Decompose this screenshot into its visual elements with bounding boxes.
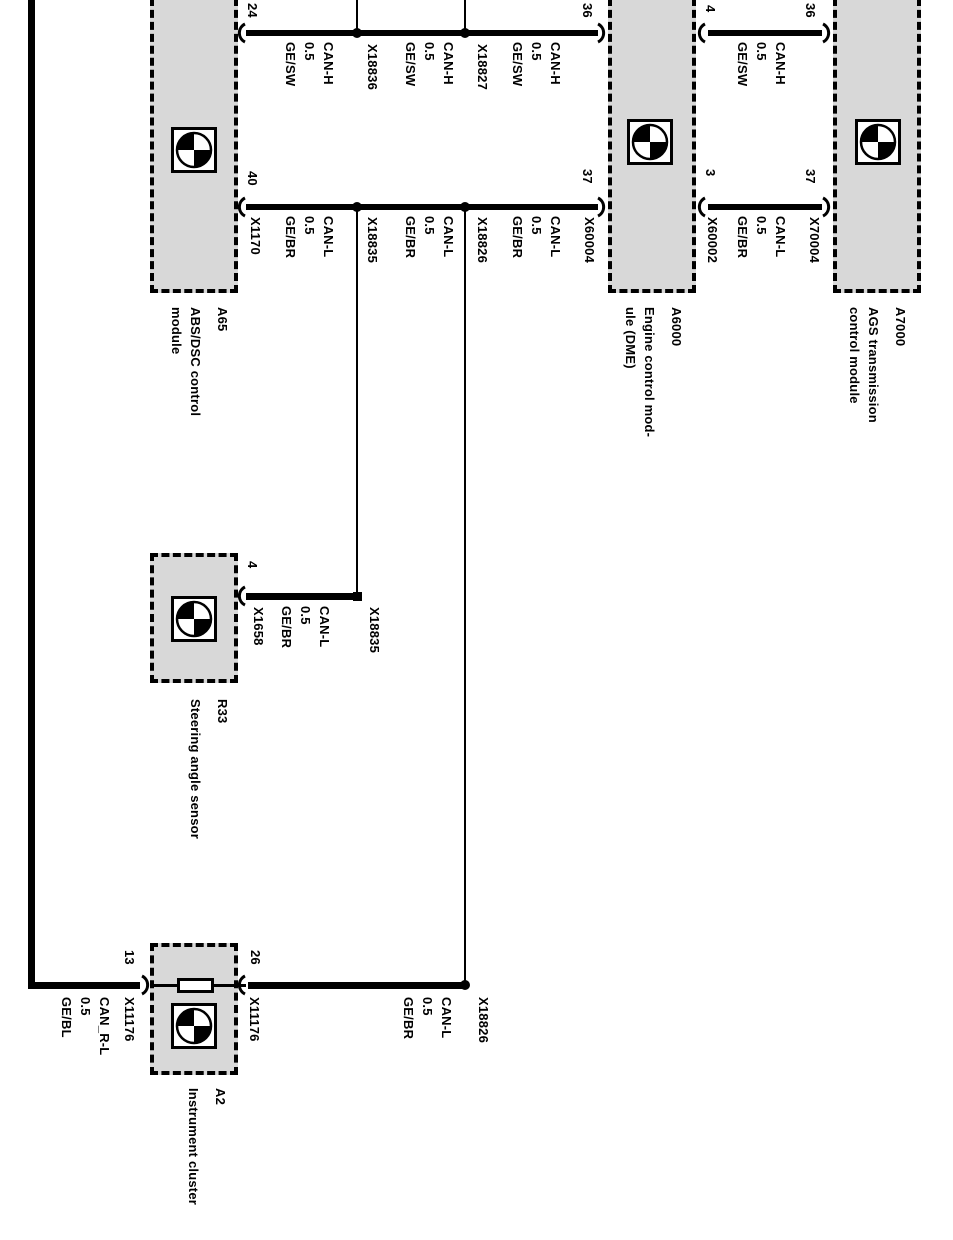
wire-label-group: CAN-H 0.5 GE/SW: [733, 42, 790, 86]
connector-bracket: [820, 196, 834, 218]
can-l-wire-abs-dme: [246, 204, 598, 210]
connector-label: X1658: [249, 607, 268, 646]
connector-label: X18835: [363, 217, 382, 263]
can-l-wire-cluster: [248, 982, 465, 989]
module-name-line: ABS/DSC control: [186, 307, 205, 416]
wire-size: 0.5: [76, 997, 95, 1055]
wire-color: GE/BR: [277, 606, 296, 648]
can-l-wire-sas: [246, 593, 358, 600]
pin-label: 40: [243, 171, 262, 186]
pin-label: 37: [801, 169, 820, 184]
module-label-cluster: A2 Instrument cluster: [184, 1088, 230, 1205]
connector-label: X18827: [473, 44, 492, 90]
connector-label: X11176: [245, 997, 264, 1042]
connector-label: X1170: [246, 217, 265, 255]
connector-bracket: [139, 974, 153, 996]
module-name-line: Steering angle sensor: [186, 699, 205, 839]
connector-bracket: [234, 22, 248, 44]
wire-signal: CAN-H: [439, 42, 458, 86]
wire-color: GE/BR: [508, 216, 527, 258]
pin-label: 4: [243, 561, 262, 568]
connector-bracket: [820, 22, 834, 44]
module-code: A6000: [667, 307, 686, 437]
wire-color: GE/BR: [401, 216, 420, 258]
bmw-roundel-icon: [627, 119, 673, 165]
junction-dot: [460, 980, 470, 990]
module-code: A65: [213, 307, 232, 416]
module-code: A2: [211, 1088, 230, 1205]
termination-resistor-symbol: [177, 978, 214, 993]
can-h-wire-abs-dme: [246, 30, 598, 36]
junction-dot: [353, 592, 362, 601]
wire-color: GE/SW: [401, 42, 420, 86]
wire-size: 0.5: [420, 216, 439, 258]
junction-dot: [460, 202, 470, 212]
wire-size: 0.5: [527, 42, 546, 86]
pin-label: 13: [120, 950, 139, 965]
module-label-ags: A7000 AGS transmission control module: [845, 307, 910, 423]
wire-color: GE/BR: [399, 997, 418, 1039]
module-name-line: control module: [845, 307, 864, 423]
junction-dot: [352, 28, 362, 38]
connector-label: X70004: [805, 217, 824, 263]
wire-size: 0.5: [752, 42, 771, 86]
connector-label: X60004: [580, 217, 599, 263]
x18826-branch-line: [464, 204, 466, 986]
wire-label-group: CAN-H 0.5 GE/SW: [401, 42, 458, 86]
wire-size: 0.5: [418, 997, 437, 1039]
wire-signal: CAN-H: [771, 42, 790, 86]
wire-signal: CAN-L: [315, 606, 334, 648]
pin-label: 36: [801, 3, 820, 18]
wire-signal: CAN-L: [771, 216, 790, 258]
pin-label: 37: [578, 169, 597, 184]
can-trunk-wire: [28, 0, 35, 989]
module-name-line: Instrument cluster: [184, 1088, 203, 1205]
connector-label: X18836: [363, 44, 382, 90]
pin-label: 26: [246, 950, 265, 965]
connector-bracket: [595, 196, 609, 218]
wire-size: 0.5: [752, 216, 771, 258]
module-code: A7000: [891, 307, 910, 423]
wire-size: 0.5: [420, 42, 439, 86]
wire-size: 0.5: [300, 42, 319, 86]
wire-label-group: CAN-L 0.5 GE/BR: [508, 216, 565, 258]
junction-dot: [460, 28, 470, 38]
module-name-line: AGS transmission: [864, 307, 883, 423]
connector-label: X18826: [474, 997, 493, 1043]
module-label-sas: R33 Steering angle sensor: [186, 699, 232, 839]
connector-bracket: [234, 974, 248, 996]
connector-bracket: [595, 22, 609, 44]
can-h-wire-dme-ags: [708, 30, 822, 36]
pin-label: 36: [578, 3, 597, 18]
connector-label: X18826: [473, 217, 492, 263]
wire-size: 0.5: [300, 216, 319, 258]
wire-label-group: CAN-H 0.5 GE/SW: [508, 42, 565, 86]
module-code: R33: [213, 699, 232, 839]
wire-color: GE/BL: [57, 997, 76, 1055]
connector-label: X11176: [120, 997, 139, 1042]
can-l-wire-dme-ags: [708, 204, 822, 210]
wire-signal: CAN-H: [546, 42, 565, 86]
can-r-l-wire-cluster: [28, 982, 140, 989]
pin-label: 24: [243, 3, 262, 18]
module-name-line: ule (DME): [621, 307, 640, 437]
connector-label: X60002: [703, 217, 722, 263]
wire-signal: CAN-L: [319, 216, 338, 258]
wire-color: GE/SW: [733, 42, 752, 86]
connector-label: X18835: [365, 607, 384, 653]
wire-label-group: CAN-L 0.5 GE/BR: [733, 216, 790, 258]
wire-signal: CAN_R-L: [95, 997, 114, 1055]
wire-color: GE/BR: [281, 216, 300, 258]
wire-size: 0.5: [527, 216, 546, 258]
wire-signal: CAN-L: [546, 216, 565, 258]
module-label-abs: A65 ABS/DSC control module: [167, 307, 232, 416]
wire-signal: CAN-H: [319, 42, 338, 86]
connector-bracket: [694, 196, 708, 218]
wire-label-group: CAN-H 0.5 GE/SW: [281, 42, 338, 86]
bmw-roundel-icon: [171, 1003, 217, 1049]
bmw-roundel-icon: [171, 127, 217, 173]
pin-label: 4: [701, 5, 720, 12]
wire-signal: CAN-L: [437, 997, 456, 1039]
wire-size: 0.5: [296, 606, 315, 648]
module-name-line: module: [167, 307, 186, 416]
connector-bracket: [234, 196, 248, 218]
wire-label-group: CAN-L 0.5 GE/BR: [401, 216, 458, 258]
pin-label: 3: [701, 169, 720, 176]
connector-bracket: [694, 22, 708, 44]
module-name-line: Engine control mod-: [640, 307, 659, 437]
wire-color: GE/BR: [733, 216, 752, 258]
connector-bracket: [234, 585, 248, 607]
bmw-roundel-icon: [855, 119, 901, 165]
wire-label-group: CAN-L 0.5 GE/BR: [281, 216, 338, 258]
wire-color: GE/SW: [281, 42, 300, 86]
wire-label-group: CAN_R-L 0.5 GE/BL: [57, 997, 114, 1055]
junction-dot: [352, 202, 362, 212]
module-label-dme: A6000 Engine control mod- ule (DME): [621, 307, 686, 437]
x18835-branch-line: [356, 204, 358, 597]
wire-label-group: CAN-L 0.5 GE/BR: [399, 997, 456, 1039]
wiring-diagram-canvas: 24 40 36 37 4 3 36 37 4 13 26 X18836 X18…: [0, 0, 953, 1240]
wire-color: GE/SW: [508, 42, 527, 86]
wire-label-group: CAN-L 0.5 GE/BR: [277, 606, 334, 648]
wire-signal: CAN-L: [439, 216, 458, 258]
bmw-roundel-icon: [171, 596, 217, 642]
